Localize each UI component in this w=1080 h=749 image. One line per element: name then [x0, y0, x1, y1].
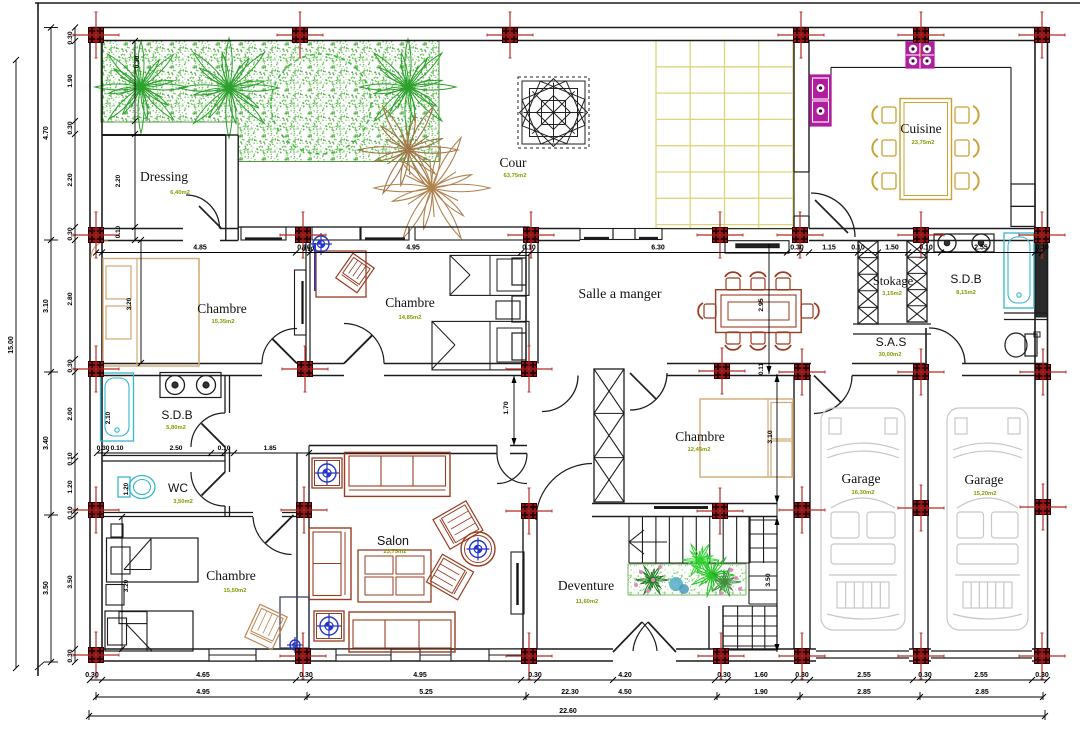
svg-text:4.50: 4.50	[618, 689, 632, 696]
svg-text:22.60: 22.60	[559, 708, 577, 715]
svg-text:Garage: Garage	[842, 471, 881, 486]
svg-text:3.10: 3.10	[767, 430, 774, 443]
svg-text:23,75m2: 23,75m2	[912, 140, 935, 146]
svg-text:0.30: 0.30	[67, 31, 74, 44]
svg-text:2.20: 2.20	[115, 174, 122, 187]
svg-text:1.90: 1.90	[67, 74, 74, 87]
svg-text:S.D.B: S.D.B	[161, 408, 192, 422]
svg-text:S.D.B: S.D.B	[950, 272, 981, 286]
svg-text:0.30: 0.30	[67, 359, 74, 372]
svg-text:2.55: 2.55	[974, 672, 988, 679]
svg-text:Chambre: Chambre	[385, 295, 435, 310]
svg-text:4.70: 4.70	[43, 126, 50, 140]
svg-text:1.15: 1.15	[822, 245, 836, 252]
svg-text:4.95: 4.95	[413, 672, 427, 679]
svg-text:8,15m2: 8,15m2	[956, 290, 976, 296]
svg-text:Deventure: Deventure	[558, 578, 614, 593]
svg-text:WC: WC	[168, 481, 188, 495]
svg-text:Dressing: Dressing	[140, 169, 188, 184]
svg-text:2.55: 2.55	[857, 672, 871, 679]
svg-text:6.30: 6.30	[651, 245, 665, 252]
svg-text:Salon: Salon	[377, 534, 409, 548]
svg-text:0.10: 0.10	[67, 506, 74, 519]
svg-text:0.30: 0.30	[85, 672, 99, 679]
svg-text:15,20m2: 15,20m2	[974, 491, 997, 497]
svg-text:14,85m2: 14,85m2	[399, 315, 422, 321]
svg-text:3.50: 3.50	[765, 573, 772, 586]
svg-text:4.20: 4.20	[618, 672, 632, 679]
svg-text:0.10: 0.10	[218, 445, 231, 452]
svg-text:0.30: 0.30	[134, 55, 141, 68]
svg-text:22.30: 22.30	[561, 689, 579, 696]
svg-text:23,75m2: 23,75m2	[384, 549, 407, 555]
svg-text:3,15m2: 3,15m2	[882, 291, 902, 297]
svg-text:Stokage: Stokage	[873, 274, 914, 288]
svg-text:4.85: 4.85	[193, 245, 207, 252]
svg-text:0.30: 0.30	[528, 672, 542, 679]
svg-text:0.10: 0.10	[115, 225, 122, 238]
svg-text:0.10: 0.10	[67, 452, 74, 465]
svg-text:1.20: 1.20	[123, 482, 130, 495]
svg-text:2.85: 2.85	[975, 689, 989, 696]
svg-text:30,00m2: 30,00m2	[879, 352, 902, 358]
svg-text:Garage: Garage	[965, 472, 1004, 487]
svg-text:0.10: 0.10	[302, 246, 315, 253]
svg-text:0.30: 0.30	[790, 245, 804, 252]
svg-text:1.85: 1.85	[264, 445, 277, 452]
svg-text:3.20: 3.20	[126, 297, 133, 310]
svg-text:1.60: 1.60	[754, 672, 768, 679]
svg-text:0.30: 0.30	[97, 445, 110, 452]
svg-text:3,50m2: 3,50m2	[173, 499, 193, 505]
svg-text:5,80m2: 5,80m2	[166, 425, 186, 431]
svg-text:2.00: 2.00	[67, 407, 74, 420]
svg-text:0.30: 0.30	[717, 672, 731, 679]
svg-text:11,60m2: 11,60m2	[576, 599, 599, 605]
svg-text:4.95: 4.95	[406, 245, 420, 252]
svg-text:6,40m2: 6,40m2	[170, 190, 190, 196]
svg-text:2.10: 2.10	[105, 411, 112, 424]
svg-text:Chambre: Chambre	[206, 568, 256, 583]
svg-text:0.30: 0.30	[918, 672, 932, 679]
svg-text:Cuisine: Cuisine	[900, 121, 941, 136]
svg-text:3.40: 3.40	[43, 436, 50, 450]
svg-text:0.30: 0.30	[67, 121, 74, 134]
svg-text:Salle a manger: Salle a manger	[578, 287, 662, 302]
svg-text:2.20: 2.20	[67, 173, 74, 186]
svg-text:15,50m2: 15,50m2	[224, 588, 247, 594]
svg-text:0.30: 0.30	[299, 672, 313, 679]
svg-text:0.30: 0.30	[67, 227, 74, 240]
svg-text:4.65: 4.65	[196, 672, 210, 679]
svg-text:2.85: 2.85	[857, 689, 871, 696]
svg-text:2.55: 2.55	[974, 245, 988, 252]
svg-text:0.10: 0.10	[522, 245, 536, 252]
svg-text:0.30: 0.30	[1035, 245, 1049, 252]
svg-text:1.50: 1.50	[885, 245, 899, 252]
svg-text:Chambre: Chambre	[197, 301, 247, 316]
svg-text:15,35m2: 15,35m2	[212, 319, 235, 325]
svg-text:4.95: 4.95	[196, 689, 210, 696]
svg-text:Chambre: Chambre	[675, 429, 725, 444]
svg-text:16,30m2: 16,30m2	[852, 490, 875, 496]
svg-text:S.A.S: S.A.S	[876, 335, 907, 349]
svg-text:3.50: 3.50	[43, 581, 50, 595]
svg-text:1.20: 1.20	[67, 480, 74, 493]
svg-text:0.30: 0.30	[1035, 672, 1049, 679]
svg-text:0.10: 0.10	[919, 245, 933, 252]
svg-text:0.10: 0.10	[851, 245, 865, 252]
svg-text:15.00: 15.00	[8, 336, 15, 354]
svg-text:3.20: 3.20	[123, 579, 130, 592]
svg-text:1.70: 1.70	[503, 401, 510, 414]
svg-text:3.50: 3.50	[67, 575, 74, 588]
svg-text:Cour: Cour	[500, 155, 528, 170]
svg-text:2.50: 2.50	[170, 445, 183, 452]
svg-text:0.10: 0.10	[111, 445, 124, 452]
svg-text:2.95: 2.95	[758, 298, 765, 311]
svg-text:0.11: 0.11	[758, 363, 765, 376]
svg-text:3.10: 3.10	[43, 299, 50, 313]
svg-text:0.30: 0.30	[795, 672, 809, 679]
svg-text:2.80: 2.80	[67, 292, 74, 305]
svg-text:0.30: 0.30	[67, 649, 74, 662]
svg-text:5.25: 5.25	[419, 689, 433, 696]
svg-text:12,45m2: 12,45m2	[688, 447, 711, 453]
svg-text:1.90: 1.90	[754, 689, 768, 696]
svg-text:63,75m2: 63,75m2	[504, 173, 527, 179]
